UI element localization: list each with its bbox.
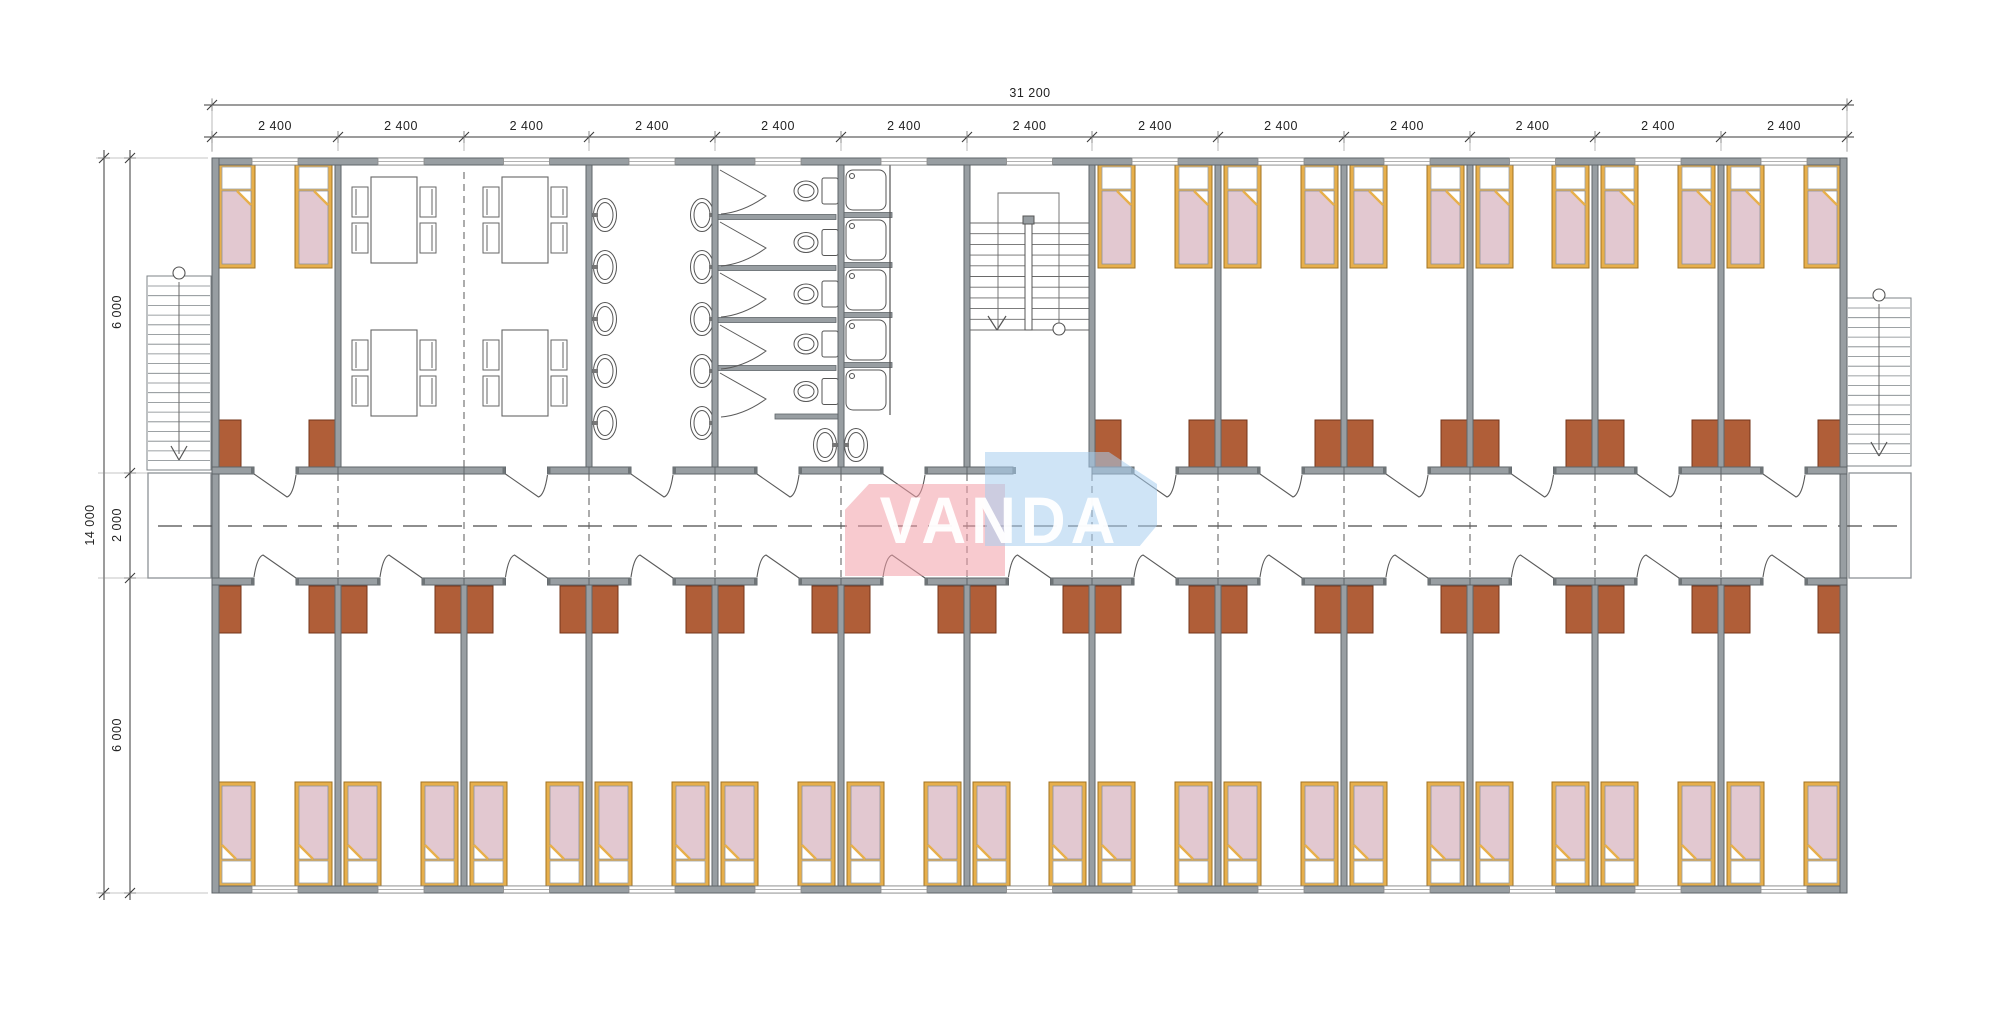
- corridor-wall-bottom: [925, 578, 967, 585]
- toilet-cistern: [822, 379, 838, 405]
- bed-pillow: [928, 861, 957, 883]
- door-jamb: [1554, 467, 1557, 474]
- stair-walkline-start: [173, 267, 185, 279]
- wardrobe-cabinet: [718, 586, 744, 633]
- door-jamb: [1383, 578, 1386, 585]
- door-leaf: [506, 474, 548, 497]
- dining-chair: [352, 187, 368, 217]
- corridor-wall-top: [212, 467, 254, 474]
- wardrobe-cabinet: [1347, 586, 1373, 633]
- corridor-wall-bottom: [1721, 578, 1763, 585]
- wardrobe-cabinet: [1473, 420, 1499, 467]
- bed-pillow: [222, 861, 251, 883]
- corridor-wall-bottom: [715, 578, 757, 585]
- corridor-wall-top: [1344, 467, 1386, 474]
- corridor-wall-top: [548, 467, 590, 474]
- toilet-bowl-inner: [798, 385, 814, 398]
- dining-table: [371, 177, 417, 263]
- floor-plan-canvas: 31 200 2 4002 4002 4002 4002 4002 4002 4…: [0, 0, 2000, 1032]
- corridor-wall-bottom: [296, 578, 338, 585]
- bay-dimension-label: 2 400: [1092, 119, 1218, 133]
- toilet-cistern: [822, 281, 838, 307]
- bed-pillow: [1179, 167, 1208, 189]
- toilet-bowl-inner: [798, 185, 814, 198]
- partition-wall-bottom-wing: [335, 585, 341, 886]
- corridor-wall-top: [1302, 467, 1344, 474]
- dining-chair: [483, 187, 499, 217]
- wash-basin-bowl: [597, 411, 613, 436]
- wash-basin-bowl: [694, 359, 710, 384]
- bed-pillow: [1305, 861, 1334, 883]
- wardrobe-cabinet: [1566, 586, 1592, 633]
- corridor-wall-top: [1470, 467, 1512, 474]
- bay-dimension-label: 2 400: [589, 119, 715, 133]
- bed-pillow: [1354, 167, 1383, 189]
- wardrobe-cabinet: [1598, 420, 1624, 467]
- corridor-wall-bottom: [673, 578, 715, 585]
- door-jamb: [880, 467, 883, 474]
- door-jamb: [1760, 467, 1763, 474]
- wardrobe-cabinet: [1724, 420, 1750, 467]
- door-jamb: [1760, 578, 1763, 585]
- shower-drain: [850, 174, 855, 179]
- corridor-wall-top: [715, 467, 757, 474]
- toilet-bowl-inner: [798, 236, 814, 249]
- door-leaf: [380, 555, 422, 578]
- wardrobe-cabinet: [1566, 420, 1592, 467]
- door-leaf: [1386, 555, 1428, 578]
- door-jamb: [799, 467, 802, 474]
- corridor-wall-top: [1176, 467, 1218, 474]
- bed-pillow: [802, 861, 831, 883]
- bed-pillow: [1556, 861, 1585, 883]
- shower-stall-partition: [842, 363, 892, 368]
- dining-table: [502, 330, 548, 416]
- wardrobe-cabinet: [970, 586, 996, 633]
- wardrobe-cabinet: [1473, 586, 1499, 633]
- bed-pillow: [1431, 167, 1460, 189]
- door-jamb: [1509, 578, 1512, 585]
- partition-wall-bottom-wing: [964, 585, 970, 886]
- partition-wall-top-wing: [964, 165, 970, 467]
- corridor-wall-bottom: [212, 578, 254, 585]
- door-jamb: [1257, 578, 1260, 585]
- door-jamb: [754, 578, 757, 585]
- door-jamb: [1679, 467, 1682, 474]
- wash-basin-bowl: [817, 433, 833, 458]
- bed-pillow: [1731, 861, 1760, 883]
- bed-pillow: [222, 167, 251, 189]
- wardrobe-cabinet: [844, 586, 870, 633]
- door-leaf: [757, 474, 799, 497]
- wardrobe-cabinet: [435, 586, 461, 633]
- door-leaf: [1260, 555, 1302, 578]
- corridor-wall-top: [589, 467, 631, 474]
- door-jamb: [503, 467, 506, 474]
- dining-chair: [483, 223, 499, 253]
- door-jamb: [925, 467, 928, 474]
- dining-chair: [551, 187, 567, 217]
- toilet-stall-door: [720, 170, 766, 214]
- corridor-wall-top: [338, 467, 464, 474]
- wardrobe-cabinet: [1692, 586, 1718, 633]
- dining-chair: [483, 376, 499, 406]
- wash-basin-bowl: [597, 255, 613, 280]
- bed-pillow: [425, 861, 454, 883]
- bed-pillow: [1228, 167, 1257, 189]
- bed-pillow: [1556, 167, 1585, 189]
- door-leaf: [1260, 474, 1302, 497]
- bed-pillow: [676, 861, 705, 883]
- partition-wall-bottom-wing: [586, 585, 592, 886]
- door-leaf: [1512, 555, 1554, 578]
- bay-dimension-label: 2 400: [338, 119, 464, 133]
- corridor-wall-top: [841, 467, 883, 474]
- corridor-wall-bottom: [841, 578, 883, 585]
- shower-stall-partition: [842, 213, 892, 218]
- corridor-wall-bottom: [1470, 578, 1512, 585]
- door-jamb: [880, 578, 883, 585]
- wardrobe-cabinet: [309, 586, 335, 633]
- corridor-wall-bottom: [464, 578, 506, 585]
- door-jamb: [1428, 467, 1431, 474]
- partition-wall-top-wing: [712, 165, 718, 467]
- corridor-wall-bottom: [1092, 578, 1134, 585]
- stair-center-rail: [1025, 220, 1032, 330]
- wardrobe-cabinet: [1315, 420, 1341, 467]
- bed-pillow: [550, 861, 579, 883]
- wash-basin-bowl: [597, 359, 613, 384]
- toilet-cistern: [822, 178, 838, 204]
- corridor-wall-top: [1554, 467, 1596, 474]
- corridor-wall-bottom: [422, 578, 464, 585]
- corridor-wall-top: [1428, 467, 1470, 474]
- bay-dimension-label: 2 400: [841, 119, 967, 133]
- dining-chair: [551, 223, 567, 253]
- toilet-stall-partition: [718, 215, 836, 220]
- partition-wall-top-wing: [1089, 165, 1095, 467]
- door-jamb: [925, 578, 928, 585]
- corridor-wall-top: [1679, 467, 1721, 474]
- exterior-wall-left: [212, 158, 219, 893]
- wash-basin-bowl: [694, 255, 710, 280]
- bed-pillow: [1605, 167, 1634, 189]
- overall-width-dimension-label: 31 200: [980, 86, 1080, 100]
- corridor-wall-top: [1595, 467, 1637, 474]
- corridor-wall-bottom: [799, 578, 841, 585]
- corridor-wall-bottom: [338, 578, 380, 585]
- bed-pillow: [977, 861, 1006, 883]
- door-leaf: [1763, 474, 1805, 497]
- door-jamb: [251, 467, 254, 474]
- bed-pillow: [1480, 167, 1509, 189]
- door-jamb: [296, 467, 299, 474]
- wardrobe-cabinet: [1221, 420, 1247, 467]
- dining-table: [502, 177, 548, 263]
- door-leaf: [506, 555, 548, 578]
- wardrobe-cabinet: [1441, 586, 1467, 633]
- door-leaf: [631, 474, 673, 497]
- partition-wall-bottom-wing: [838, 585, 844, 886]
- bed-pillow: [1808, 167, 1837, 189]
- corridor-wall-bottom: [1344, 578, 1386, 585]
- wardrobe-cabinet: [560, 586, 586, 633]
- toilet-stall-partition: [718, 266, 836, 271]
- partition-wall-bottom-wing: [1467, 585, 1473, 886]
- dining-chair: [483, 340, 499, 370]
- door-jamb: [1634, 578, 1637, 585]
- dining-chair: [352, 376, 368, 406]
- wardrobe-cabinet: [1189, 586, 1215, 633]
- bed-pillow: [1228, 861, 1257, 883]
- door-jamb: [1679, 578, 1682, 585]
- door-leaf: [1637, 555, 1679, 578]
- door-jamb: [628, 467, 631, 474]
- wardrobe-cabinet: [1441, 420, 1467, 467]
- bed-pillow: [299, 861, 328, 883]
- bay-dimension-label: 2 400: [1595, 119, 1721, 133]
- partition-wall-bottom-wing: [1215, 585, 1221, 886]
- wardrobe-cabinet: [1724, 586, 1750, 633]
- dining-chair: [352, 340, 368, 370]
- toilet-bowl-inner: [798, 338, 814, 351]
- wardrobe-cabinet: [1347, 420, 1373, 467]
- door-jamb: [1383, 467, 1386, 474]
- door-jamb: [1509, 467, 1512, 474]
- corridor-wall-top: [925, 467, 967, 474]
- bay-dimension-label: 2 400: [464, 119, 589, 133]
- corridor-wall-top: [464, 467, 506, 474]
- corridor-wall-top: [673, 467, 715, 474]
- wardrobe-cabinet: [1063, 586, 1089, 633]
- bed-pillow: [1682, 167, 1711, 189]
- door-leaf: [1512, 474, 1554, 497]
- wash-basin-bowl: [694, 307, 710, 332]
- bay-dimension-label: 2 400: [967, 119, 1092, 133]
- toilet-bowl-inner: [798, 288, 814, 301]
- shower-stall-partition: [842, 313, 892, 318]
- dining-chair: [352, 223, 368, 253]
- corridor-wall-bottom: [1554, 578, 1596, 585]
- door-jamb: [1176, 467, 1179, 474]
- door-jamb: [1554, 578, 1557, 585]
- bed-pillow: [1480, 861, 1509, 883]
- partition-wall-top-wing: [838, 165, 844, 467]
- corridor-wall-bottom: [1051, 578, 1093, 585]
- wardrobe-cabinet: [1598, 586, 1624, 633]
- door-leaf: [1386, 474, 1428, 497]
- door-leaf: [254, 474, 296, 497]
- dining-chair: [420, 187, 436, 217]
- corridor-wall-bottom: [1595, 578, 1637, 585]
- bay-dimension-label: 2 400: [1721, 119, 1847, 133]
- door-jamb: [1302, 467, 1305, 474]
- dining-chair: [551, 340, 567, 370]
- door-jamb: [1805, 467, 1808, 474]
- door-jamb: [799, 578, 802, 585]
- wash-basin-bowl: [848, 433, 864, 458]
- door-jamb: [251, 578, 254, 585]
- toilet-stall-door: [720, 373, 766, 417]
- bed-pillow: [299, 167, 328, 189]
- door-jamb: [1302, 578, 1305, 585]
- shower-stall-partition: [842, 263, 892, 268]
- toilet-stall-door: [720, 222, 766, 266]
- bed-pillow: [474, 861, 503, 883]
- door-leaf: [757, 555, 799, 578]
- door-jamb: [548, 467, 551, 474]
- bed-pillow: [1053, 861, 1082, 883]
- bed-pillow: [725, 861, 754, 883]
- watermark-logo-text: VANDA: [855, 477, 1145, 566]
- door-jamb: [548, 578, 551, 585]
- door-jamb: [503, 578, 506, 585]
- stair-down-arrow: [988, 316, 997, 330]
- bay-dimension-label: 2 400: [1344, 119, 1470, 133]
- wash-basin-bowl: [694, 203, 710, 228]
- corridor-wall-bottom: [1176, 578, 1218, 585]
- door-jamb: [1257, 467, 1260, 474]
- toilet-stall-door: [720, 273, 766, 317]
- corridor-wall-bottom: [1679, 578, 1721, 585]
- partition-wall-top-wing: [1215, 165, 1221, 467]
- bed-pillow: [1354, 861, 1383, 883]
- toilet-vestibule-wall: [775, 414, 838, 419]
- wardrobe-cabinet: [686, 586, 712, 633]
- partition-wall-top-wing: [1592, 165, 1598, 467]
- corridor-wall-top: [1721, 467, 1763, 474]
- corridor-wall-top: [296, 467, 338, 474]
- door-jamb: [1428, 578, 1431, 585]
- partition-wall-top-wing: [335, 165, 341, 467]
- toilet-cistern: [822, 331, 838, 357]
- shower-drain: [850, 324, 855, 329]
- bed-pillow: [1102, 167, 1131, 189]
- door-leaf: [631, 555, 673, 578]
- wardrobe-cabinet: [467, 586, 493, 633]
- door-jamb: [1805, 578, 1808, 585]
- dining-chair: [551, 376, 567, 406]
- door-leaf: [1763, 555, 1805, 578]
- dining-chair: [420, 223, 436, 253]
- partition-wall-top-wing: [1341, 165, 1347, 467]
- corridor-wall-top: [1218, 467, 1260, 474]
- bay-dimension-label: 2 400: [212, 119, 338, 133]
- door-leaf: [254, 555, 296, 578]
- wardrobe-cabinet: [1315, 586, 1341, 633]
- bed-pillow: [1305, 167, 1334, 189]
- wash-basin-bowl: [597, 203, 613, 228]
- shower-drain: [850, 274, 855, 279]
- bay-dimension-label: 2 400: [715, 119, 841, 133]
- height-segment-label-top: 6 000: [110, 277, 124, 347]
- bed-pillow: [851, 861, 880, 883]
- partition-wall-top-wing: [586, 165, 592, 467]
- bay-dimension-label: 2 400: [1218, 119, 1344, 133]
- partition-wall-bottom-wing: [1089, 585, 1095, 886]
- door-jamb: [377, 578, 380, 585]
- corridor-wall-bottom: [1805, 578, 1847, 585]
- corridor-wall-bottom: [548, 578, 590, 585]
- corridor-wall-top: [799, 467, 841, 474]
- door-jamb: [1131, 578, 1134, 585]
- bed-pillow: [1102, 861, 1131, 883]
- bed-pillow: [1731, 167, 1760, 189]
- partition-wall-bottom-wing: [1341, 585, 1347, 886]
- wardrobe-cabinet: [812, 586, 838, 633]
- door-jamb: [1176, 578, 1179, 585]
- corridor-wall-bottom: [967, 578, 1009, 585]
- bed-pillow: [1431, 861, 1460, 883]
- bed-pillow: [1605, 861, 1634, 883]
- partition-wall-bottom-wing: [1718, 585, 1724, 886]
- toilet-stall-door: [720, 325, 766, 369]
- partition-wall-bottom-wing: [712, 585, 718, 886]
- wardrobe-cabinet: [309, 420, 335, 467]
- door-leaf: [1637, 474, 1679, 497]
- corridor-wall-bottom: [1302, 578, 1344, 585]
- door-jamb: [1006, 578, 1009, 585]
- wardrobe-cabinet: [1189, 420, 1215, 467]
- shower-drain: [850, 374, 855, 379]
- wash-basin-bowl: [597, 307, 613, 332]
- wardrobe-cabinet: [592, 586, 618, 633]
- door-jamb: [422, 578, 425, 585]
- wardrobe-cabinet: [1692, 420, 1718, 467]
- partition-wall-bottom-wing: [461, 585, 467, 886]
- height-segment-label-bottom: 6 000: [110, 700, 124, 770]
- door-jamb: [754, 467, 757, 474]
- shower-drain: [850, 224, 855, 229]
- door-jamb: [673, 578, 676, 585]
- door-jamb: [628, 578, 631, 585]
- bed-pillow: [1179, 861, 1208, 883]
- toilet-cistern: [822, 230, 838, 256]
- bed-pillow: [1808, 861, 1837, 883]
- wardrobe-cabinet: [341, 586, 367, 633]
- corridor-wall-bottom: [1218, 578, 1260, 585]
- bed-pillow: [348, 861, 377, 883]
- corridor-wall-bottom: [1428, 578, 1470, 585]
- exterior-wall-right: [1840, 158, 1847, 893]
- stair-walkline-start: [1873, 289, 1885, 301]
- door-jamb: [296, 578, 299, 585]
- partition-wall-top-wing: [1467, 165, 1473, 467]
- door-jamb: [1634, 467, 1637, 474]
- corridor-wall-bottom: [589, 578, 631, 585]
- bed-pillow: [1682, 861, 1711, 883]
- dining-chair: [420, 340, 436, 370]
- stair-newel: [1023, 216, 1034, 224]
- stair-walkline-start: [1053, 323, 1065, 335]
- corridor-wall-top: [1805, 467, 1847, 474]
- door-jamb: [673, 467, 676, 474]
- height-segment-label-corridor: 2 000: [110, 490, 124, 560]
- dining-chair: [420, 376, 436, 406]
- wardrobe-cabinet: [938, 586, 964, 633]
- bed-pillow: [599, 861, 628, 883]
- bay-dimension-label: 2 400: [1470, 119, 1595, 133]
- dining-table: [371, 330, 417, 416]
- wash-basin-bowl: [694, 411, 710, 436]
- wardrobe-cabinet: [1095, 586, 1121, 633]
- partition-wall-bottom-wing: [1592, 585, 1598, 886]
- overall-height-dimension-label: 14 000: [83, 490, 97, 560]
- partition-wall-top-wing: [1718, 165, 1724, 467]
- toilet-stall-partition: [718, 318, 836, 323]
- wardrobe-cabinet: [1221, 586, 1247, 633]
- door-jamb: [1051, 578, 1054, 585]
